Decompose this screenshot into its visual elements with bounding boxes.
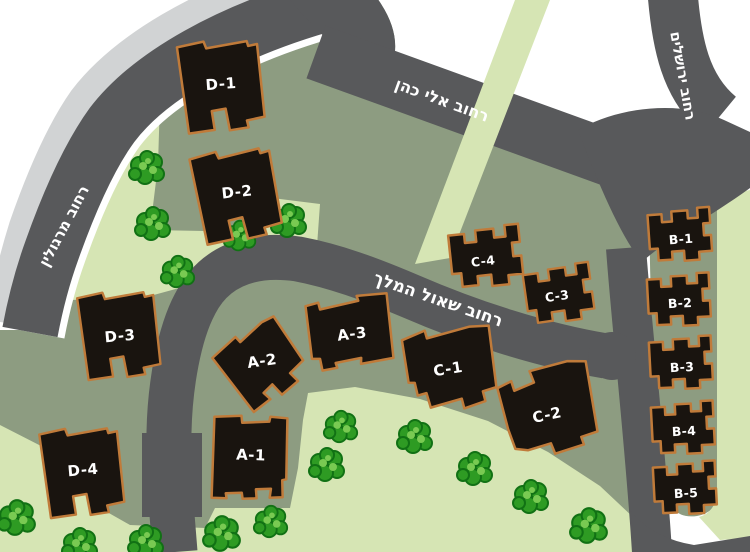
building-label-d3: D-3 bbox=[104, 326, 136, 347]
building-label-a3: A-3 bbox=[336, 323, 368, 344]
building-label-d4: D-4 bbox=[67, 460, 99, 481]
building-label-b1: B-1 bbox=[668, 231, 693, 248]
building-label-b3: B-3 bbox=[669, 359, 694, 375]
building-label-d2: D-2 bbox=[221, 181, 254, 202]
site-plan-map: רחוב מרגולין רחוב אלי כהן רחוב שאול המלך… bbox=[0, 0, 750, 552]
building-label-c4: C-4 bbox=[470, 252, 496, 269]
building-label-a1: A-1 bbox=[236, 445, 266, 464]
building-label-b5: B-5 bbox=[673, 485, 698, 501]
road-junction-shaul-east bbox=[588, 332, 636, 380]
road-stub-south bbox=[142, 433, 202, 517]
building-label-b4: B-4 bbox=[671, 423, 696, 439]
site-plan-svg: רחוב מרגולין רחוב אלי כהן רחוב שאול המלך… bbox=[0, 0, 750, 552]
building-label-b2: B-2 bbox=[667, 295, 692, 311]
building-label-d1: D-1 bbox=[205, 74, 237, 94]
